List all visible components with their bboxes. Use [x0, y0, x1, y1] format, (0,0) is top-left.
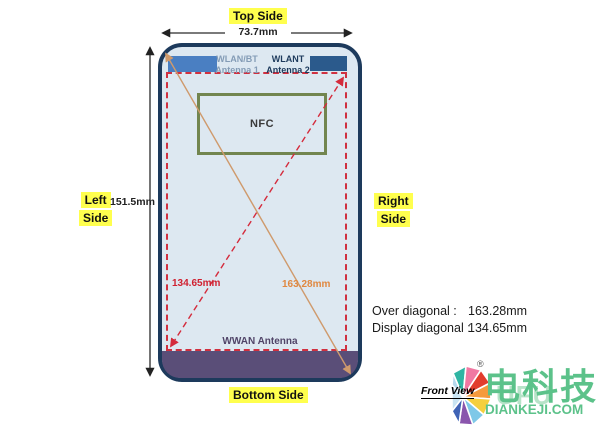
over-diagonal-value: 163.28mm	[282, 279, 330, 290]
left-side-label-line1: Left	[81, 192, 111, 208]
front-view-label: Front View	[421, 385, 474, 399]
display-diagonal-note-value: 134.65mm	[468, 320, 527, 336]
over-diagonal-note-value: 163.28mm	[468, 303, 527, 319]
right-side-label: Right Side	[374, 192, 413, 228]
left-side-label: Left Side	[79, 191, 112, 227]
brand-site-url: DIANKEJI.COM	[485, 402, 583, 417]
wwan-antenna-strip	[162, 351, 358, 378]
height-dimension-label: 151.5mm	[110, 196, 155, 208]
wlant-antenna2-label: WLANT Antenna 2	[262, 54, 314, 75]
registered-trademark-icon: ®	[477, 359, 484, 369]
width-dimension-label: 73.7mm	[225, 26, 291, 38]
over-diagonal-note-label: Over diagonal :	[372, 303, 468, 319]
top-side-label: Top Side	[229, 8, 287, 24]
display-diagonal-note-label: Display diagonal :	[372, 320, 468, 336]
right-side-label-line1: Right	[374, 193, 413, 209]
antenna1-label-line1: WLAN/BT	[216, 54, 258, 64]
wlant-antenna2-rect	[310, 56, 347, 71]
right-side-label-line2: Side	[377, 211, 410, 227]
left-side-label-line2: Side	[79, 210, 112, 226]
wlan-bt-antenna1-label: WLAN/BT Antenna 1	[208, 54, 266, 75]
diagonal-notes: Over diagonal : 163.28mm Display diagona…	[372, 303, 527, 336]
display-diagonal-value: 134.65mm	[172, 278, 220, 289]
display-area-dashed-rect	[166, 72, 347, 351]
wwan-antenna-label: WWAN Antenna	[158, 336, 362, 347]
antenna2-label-line1: WLANT	[272, 54, 305, 64]
antenna2-label-line2: Antenna 2	[266, 65, 310, 75]
bottom-side-label: Bottom Side	[229, 387, 308, 403]
antenna-diagram-page: Top Side Bottom Side Left Side Right Sid…	[0, 0, 600, 428]
antenna1-label-line2: Antenna 1	[215, 65, 259, 75]
